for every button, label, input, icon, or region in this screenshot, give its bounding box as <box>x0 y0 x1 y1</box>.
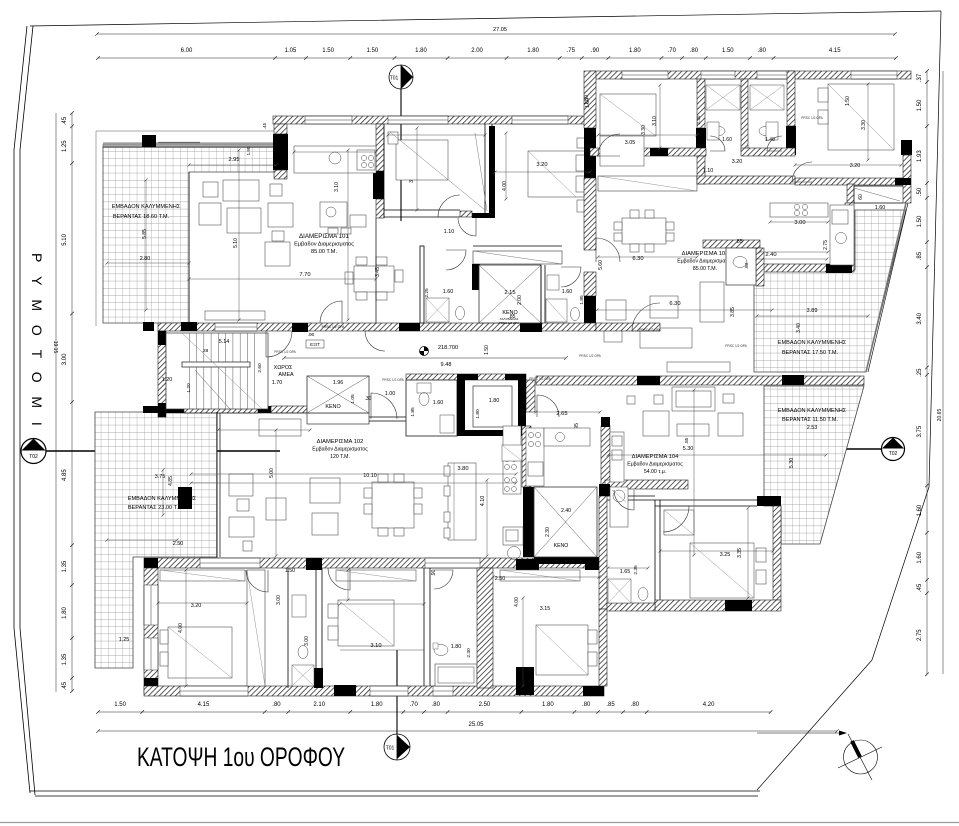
svg-text:2.25: 2.25 <box>424 288 430 298</box>
svg-text:5.10: 5.10 <box>233 238 239 248</box>
svg-text:KENO: KENO <box>554 543 569 549</box>
svg-text:5.00: 5.00 <box>269 468 275 478</box>
svg-text:2.00: 2.00 <box>517 295 523 305</box>
svg-text:1.50: 1.50 <box>114 702 126 708</box>
svg-text:1.70: 1.70 <box>272 380 283 386</box>
svg-text:85.00 Τ.Μ.: 85.00 Τ.Μ. <box>693 266 717 272</box>
svg-text:Εμβαδον Διαμερισματος: Εμβαδον Διαμερισματος <box>677 259 733 265</box>
svg-text:.85: .85 <box>606 702 615 708</box>
svg-text:3.00: 3.00 <box>276 595 282 605</box>
svg-text:.90: .90 <box>308 332 315 338</box>
svg-text:2.30: 2.30 <box>696 115 701 124</box>
svg-text:1.60: 1.60 <box>562 289 573 295</box>
svg-text:ΒΕΡΑΝΤΑΣ 18.60 Τ.Μ.: ΒΕΡΑΝΤΑΣ 18.60 Τ.Μ. <box>113 214 170 220</box>
svg-text:218.700: 218.700 <box>438 345 458 351</box>
svg-text:.70: .70 <box>668 48 677 54</box>
svg-text:5.30: 5.30 <box>789 458 795 469</box>
svg-text:1.20: 1.20 <box>162 377 173 383</box>
svg-text:6.00: 6.00 <box>181 48 193 54</box>
svg-text:PRSC 1/2 ΩΡΑ: PRSC 1/2 ΩΡΑ <box>529 377 551 381</box>
svg-text:ΚΕΝΟ: ΚΕΝΟ <box>325 404 340 410</box>
svg-text:4.20: 4.20 <box>703 702 715 708</box>
svg-text:.80: .80 <box>690 48 699 54</box>
svg-text:3.89: 3.89 <box>807 308 818 314</box>
svg-text:19.15: 19.15 <box>52 341 58 354</box>
svg-text:27.05: 27.05 <box>493 27 507 33</box>
svg-text:1.60: 1.60 <box>722 137 732 143</box>
svg-text:ΒΕΡΑΝΤΑΣ 17.50 Τ.Μ.: ΒΕΡΑΝΤΑΣ 17.50 Τ.Μ. <box>782 350 839 356</box>
svg-text:1.05: 1.05 <box>285 48 297 54</box>
svg-text:3.45: 3.45 <box>375 267 381 277</box>
svg-text:.90: .90 <box>591 48 600 54</box>
svg-text:5.30: 5.30 <box>683 446 694 452</box>
svg-text:Εμβαδον Διαμερισματος: Εμβαδον Διαμερισματος <box>294 242 354 248</box>
svg-text:3.35: 3.35 <box>737 548 743 558</box>
svg-text:1.25: 1.25 <box>119 637 130 643</box>
svg-text:.90: .90 <box>431 569 437 576</box>
svg-text:ΚΑΤΟΨΗ 1ου ΟΡΟΦΟΥ: ΚΑΤΟΨΗ 1ου ΟΡΟΦΟΥ <box>137 742 345 772</box>
svg-text:1.10: 1.10 <box>703 168 714 174</box>
svg-text:PRSC 1/2 ΩΡΑ: PRSC 1/2 ΩΡΑ <box>725 344 747 348</box>
svg-text:1.80: 1.80 <box>629 48 641 54</box>
svg-text:PRSC 1/2 ΩΡΑ: PRSC 1/2 ΩΡΑ <box>274 350 296 354</box>
svg-text:2.75: 2.75 <box>917 629 923 641</box>
svg-text:1.93: 1.93 <box>917 150 923 162</box>
svg-text:3.10: 3.10 <box>370 643 381 649</box>
svg-text:.28: .28 <box>202 348 209 354</box>
svg-text:5.10: 5.10 <box>62 233 68 245</box>
svg-text:3.20: 3.20 <box>191 603 202 609</box>
svg-text:3.40: 3.40 <box>917 312 923 324</box>
svg-text:4.00: 4.00 <box>502 181 508 191</box>
svg-text:3.20: 3.20 <box>732 159 743 165</box>
svg-text:3.85: 3.85 <box>730 307 736 317</box>
svg-text:2.35: 2.35 <box>633 565 639 575</box>
svg-text:2.30: 2.30 <box>545 527 551 537</box>
svg-text:1.50: 1.50 <box>285 568 295 574</box>
svg-text:2.60: 2.60 <box>257 363 263 373</box>
svg-text:4.00: 4.00 <box>178 623 184 633</box>
svg-text:PRSC 1/2 ΩΡΑ: PRSC 1/2 ΩΡΑ <box>579 354 601 358</box>
svg-text:1.96: 1.96 <box>333 380 344 386</box>
svg-text:.80: .80 <box>758 48 767 54</box>
svg-text:1.60: 1.60 <box>433 400 444 406</box>
svg-text:1.90: 1.90 <box>246 146 251 155</box>
svg-text:1.60: 1.60 <box>917 551 923 563</box>
svg-text:ΑΜΕΑ: ΑΜΕΑ <box>278 372 294 378</box>
svg-text:T02: T02 <box>29 454 38 460</box>
svg-text:6.30: 6.30 <box>669 301 680 307</box>
svg-text:1.80: 1.80 <box>62 607 68 619</box>
svg-text:25.05: 25.05 <box>468 722 484 728</box>
svg-text:1.20: 1.20 <box>186 383 192 393</box>
svg-text:2.50: 2.50 <box>173 541 184 547</box>
svg-text:5.14: 5.14 <box>219 339 230 345</box>
svg-text:4.85: 4.85 <box>62 469 68 481</box>
svg-text:1.85: 1.85 <box>410 407 416 417</box>
svg-text:1.80: 1.80 <box>475 409 481 419</box>
svg-text:.85: .85 <box>684 437 689 444</box>
svg-text:3.20: 3.20 <box>536 162 547 168</box>
svg-text:3.75: 3.75 <box>155 474 166 480</box>
svg-text:.45: .45 <box>917 583 923 592</box>
svg-text:120 Τ.Μ.: 120 Τ.Μ. <box>330 454 350 460</box>
svg-text:ΕΜΒΑΔΟΝ ΚΑΛΥΜΜΕΝΗΣ: ΕΜΒΑΔΟΝ ΚΑΛΥΜΜΕΝΗΣ <box>112 204 181 210</box>
svg-text:1.80: 1.80 <box>371 702 383 708</box>
svg-text:4.00: 4.00 <box>514 597 520 607</box>
svg-text:1.50: 1.50 <box>484 345 490 355</box>
svg-text:1.50: 1.50 <box>917 215 923 227</box>
svg-text:2.53: 2.53 <box>807 425 818 431</box>
svg-text:1.25: 1.25 <box>62 140 68 152</box>
svg-text:1.50: 1.50 <box>584 95 590 105</box>
svg-text:PRSC 1/2 ΩΡΑ: PRSC 1/2 ΩΡΑ <box>382 378 404 382</box>
svg-text:1.50: 1.50 <box>367 48 379 54</box>
svg-text:.85: .85 <box>735 239 743 245</box>
svg-text:3.05: 3.05 <box>625 140 636 146</box>
svg-text:.75: .75 <box>567 48 576 54</box>
svg-text:1.60: 1.60 <box>917 504 923 516</box>
svg-text:ΧΩΡΟΣ: ΧΩΡΟΣ <box>274 365 293 371</box>
svg-text:Εμβαδον Διαμερισματος: Εμβαδον Διαμερισματος <box>627 462 683 468</box>
svg-text:1.80: 1.80 <box>451 644 462 650</box>
svg-text:4.10: 4.10 <box>480 496 486 507</box>
svg-text:3.00: 3.00 <box>794 220 805 226</box>
svg-text:.85: .85 <box>917 251 923 260</box>
svg-text:1.85: 1.85 <box>579 295 585 305</box>
svg-text:.60: .60 <box>744 262 749 269</box>
svg-text:.85: .85 <box>509 314 516 320</box>
svg-text:2.50: 2.50 <box>479 702 491 708</box>
svg-text:T01: T01 <box>390 76 399 82</box>
svg-text:.45: .45 <box>62 116 68 125</box>
svg-text:3.00: 3.00 <box>62 353 68 365</box>
svg-text:1.50: 1.50 <box>722 48 734 54</box>
svg-text:2.00: 2.00 <box>471 48 483 54</box>
svg-text:2.95: 2.95 <box>228 157 239 163</box>
svg-text:7.70: 7.70 <box>299 272 310 278</box>
svg-text:5.85: 5.85 <box>142 229 148 239</box>
svg-text:ΕΜΒΑΔΟΝ ΚΑΛΥΜΜΕΝΗΣ: ΕΜΒΑΔΟΝ ΚΑΛΥΜΜΕΝΗΣ <box>778 340 847 346</box>
svg-text:1.60: 1.60 <box>443 289 454 295</box>
svg-text:ΒΕΡΑΝΤΑΣ 11.50 Τ.Μ.: ΒΕΡΑΝΤΑΣ 11.50 Τ.Μ. <box>782 417 838 423</box>
svg-text:1.80: 1.80 <box>489 398 500 404</box>
svg-text:.70: .70 <box>409 702 418 708</box>
svg-text:1.65: 1.65 <box>620 569 631 575</box>
svg-text:5.60: 5.60 <box>598 260 604 270</box>
svg-text:ΒΕΡΑΝΤΑΣ 23.00 Τ.Μ.: ΒΕΡΑΝΤΑΣ 23.00 Τ.Μ. <box>128 505 185 511</box>
svg-text:2.80: 2.80 <box>140 256 151 262</box>
svg-text:.30: .30 <box>365 396 372 402</box>
svg-text:1.10: 1.10 <box>444 229 455 235</box>
svg-text:4.85: 4.85 <box>168 476 174 486</box>
svg-text:1.60: 1.60 <box>875 205 886 211</box>
svg-text:54.00 τ.μ.: 54.00 τ.μ. <box>644 469 666 475</box>
svg-text:.80: .80 <box>631 702 640 708</box>
svg-text:.80: .80 <box>582 702 591 708</box>
svg-text:2.15: 2.15 <box>504 290 515 296</box>
svg-text:T02: T02 <box>889 451 898 457</box>
svg-text:PRSC 1/2 ΩΡΑ: PRSC 1/2 ΩΡΑ <box>322 325 346 329</box>
svg-text:ΔΙΑΜΕΡΙΣΜΑ 102: ΔΙΑΜΕΡΙΣΜΑ 102 <box>317 439 364 445</box>
svg-text:3.80: 3.80 <box>457 466 468 472</box>
svg-text:3.20: 3.20 <box>850 163 861 169</box>
svg-text:1.00: 1.00 <box>385 391 396 397</box>
svg-text:85.00 Τ.Μ.: 85.00 Τ.Μ. <box>311 249 337 255</box>
svg-text:.80: .80 <box>272 702 281 708</box>
svg-text:1.50: 1.50 <box>917 99 923 111</box>
svg-text:ΕΞΙΤ: ΕΞΙΤ <box>310 342 320 347</box>
svg-text:3.00: 3.00 <box>304 636 310 646</box>
svg-text:1.80: 1.80 <box>415 48 427 54</box>
svg-text:3.75: 3.75 <box>917 425 923 437</box>
svg-text:4.15: 4.15 <box>829 48 841 54</box>
svg-text:PRSC 1/2 ΩΡΑ: PRSC 1/2 ΩΡΑ <box>801 116 823 120</box>
svg-text:ΕΜΒΑΔΟΝ ΚΑΛΥΜΜΕΝΗΣ: ΕΜΒΑΔΟΝ ΚΑΛΥΜΜΕΝΗΣ <box>778 408 847 414</box>
svg-text:3.30: 3.30 <box>641 125 647 135</box>
svg-text:ΔΙΑΜΕΡΙΣΜΑ 103: ΔΙΑΜΕΡΙΣΜΑ 103 <box>682 251 729 257</box>
svg-text:1.80: 1.80 <box>542 702 554 708</box>
svg-text:.45: .45 <box>62 681 68 690</box>
svg-text:9.48: 9.48 <box>441 362 452 368</box>
svg-text:1.80: 1.80 <box>527 48 539 54</box>
svg-text:2.10: 2.10 <box>313 702 325 708</box>
svg-text:T01: T01 <box>386 746 395 752</box>
svg-text:2.75: 2.75 <box>823 240 829 250</box>
svg-text:2.40: 2.40 <box>765 252 776 258</box>
svg-text:1.05: 1.05 <box>350 394 356 404</box>
svg-text:3.30: 3.30 <box>861 120 867 130</box>
svg-text:3.25: 3.25 <box>720 552 731 558</box>
svg-text:3.10: 3.10 <box>652 116 658 126</box>
svg-text:60: 60 <box>858 194 864 200</box>
svg-text:.80: .80 <box>432 702 441 708</box>
svg-text:3.15: 3.15 <box>540 606 551 612</box>
svg-text:.50: .50 <box>917 187 923 196</box>
svg-text:1.50: 1.50 <box>322 48 334 54</box>
svg-text:3.10: 3.10 <box>334 182 340 192</box>
svg-text:3.40: 3.40 <box>796 323 802 333</box>
svg-text:PRSC 1/2 ΩΡΑ: PRSC 1/2 ΩΡΑ <box>499 321 519 325</box>
svg-text:1.35: 1.35 <box>62 560 68 572</box>
svg-text:1.35: 1.35 <box>62 653 68 665</box>
svg-text:Εμβαδον Διαμερισματος: Εμβαδον Διαμερισματος <box>312 447 368 453</box>
svg-text:.37: .37 <box>917 73 923 82</box>
svg-text:2.30: 2.30 <box>466 648 472 658</box>
svg-text:PRSC 1/2 ΩΡΑ: PRSC 1/2 ΩΡΑ <box>639 328 661 332</box>
svg-text:2.40: 2.40 <box>561 508 571 514</box>
svg-text:1.50: 1.50 <box>845 96 851 106</box>
svg-text:4.15: 4.15 <box>198 702 210 708</box>
svg-text:.45: .45 <box>262 122 267 129</box>
svg-text:20.65: 20.65 <box>937 409 943 422</box>
svg-text:.25: .25 <box>917 368 923 377</box>
